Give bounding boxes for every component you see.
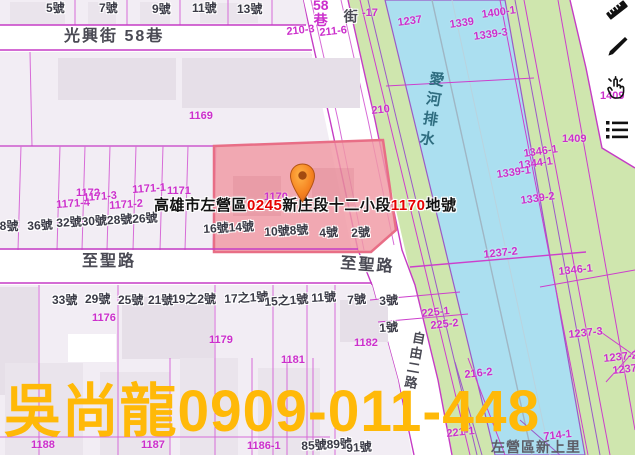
select-hand-icon[interactable] xyxy=(602,74,632,104)
street-name-label: 光興街 58巷 xyxy=(64,29,164,46)
lot-number-label: 1237 xyxy=(612,363,635,377)
lot-number-label: -17 xyxy=(362,8,378,20)
house-number-label: 36號 xyxy=(27,219,53,233)
parcel-address-part: 0245 xyxy=(247,197,282,214)
map-canvas[interactable]: 210-3211-6-172101169123713391400-11339-3… xyxy=(0,0,635,455)
house-number-label: 19之2號 xyxy=(172,293,216,306)
pencil-icon[interactable] xyxy=(602,32,632,62)
map-toolbar xyxy=(600,0,634,145)
street-label-lane-58: 58巷 xyxy=(313,0,329,27)
lot-number-label: 1169 xyxy=(189,111,213,123)
house-number-label: 2號 xyxy=(351,226,370,240)
street-name-label: 街 xyxy=(343,9,358,25)
ruler-icon[interactable] xyxy=(602,0,632,25)
house-number-label: 13號 xyxy=(237,3,262,16)
agent-watermark: 吳尚龍0909-011-448 xyxy=(4,364,540,448)
house-number-label: 15之1號 xyxy=(264,293,309,309)
house-number-label: 10號8號 xyxy=(264,224,309,239)
house-number-label: 17之1號 xyxy=(224,291,269,306)
lot-number-label: 1182 xyxy=(354,338,378,350)
house-number-label: 11號 xyxy=(192,2,217,15)
house-number-label: 33號 xyxy=(52,294,77,307)
lot-number-label: 1176 xyxy=(92,313,116,325)
house-number-label: 9號 xyxy=(152,3,171,16)
house-number-label: 29號 xyxy=(85,293,110,306)
house-number-label: 5號 xyxy=(46,2,65,15)
house-number-label: 25號 xyxy=(118,294,143,307)
lot-number-label: 210 xyxy=(371,104,390,117)
parcel-address-part: 地號 xyxy=(425,197,456,214)
lot-number-label: 1171-2 xyxy=(109,199,143,213)
house-number-label: 21號 xyxy=(148,294,173,307)
house-number-label: 16號14號 xyxy=(203,220,254,235)
house-number-label: 11號 xyxy=(311,291,336,305)
lot-number-label: 1179 xyxy=(209,335,233,347)
house-number-label: 38號 xyxy=(0,220,18,233)
house-number-label: 7號 xyxy=(99,2,118,15)
parcel-address-part: 高雄市左營區 xyxy=(154,197,247,214)
house-number-label: 7號 xyxy=(347,293,366,307)
parcel-address-part: 1170 xyxy=(391,197,426,214)
house-number-label: 1號 xyxy=(379,321,398,335)
house-number-label: 3號 xyxy=(379,294,398,308)
lot-number-label: 1409 xyxy=(562,134,586,146)
house-number-label: 4號 xyxy=(319,226,338,240)
list-icon[interactable] xyxy=(602,115,632,145)
location-pin-icon[interactable] xyxy=(289,163,316,204)
street-name-label: 至聖路 xyxy=(82,254,136,271)
